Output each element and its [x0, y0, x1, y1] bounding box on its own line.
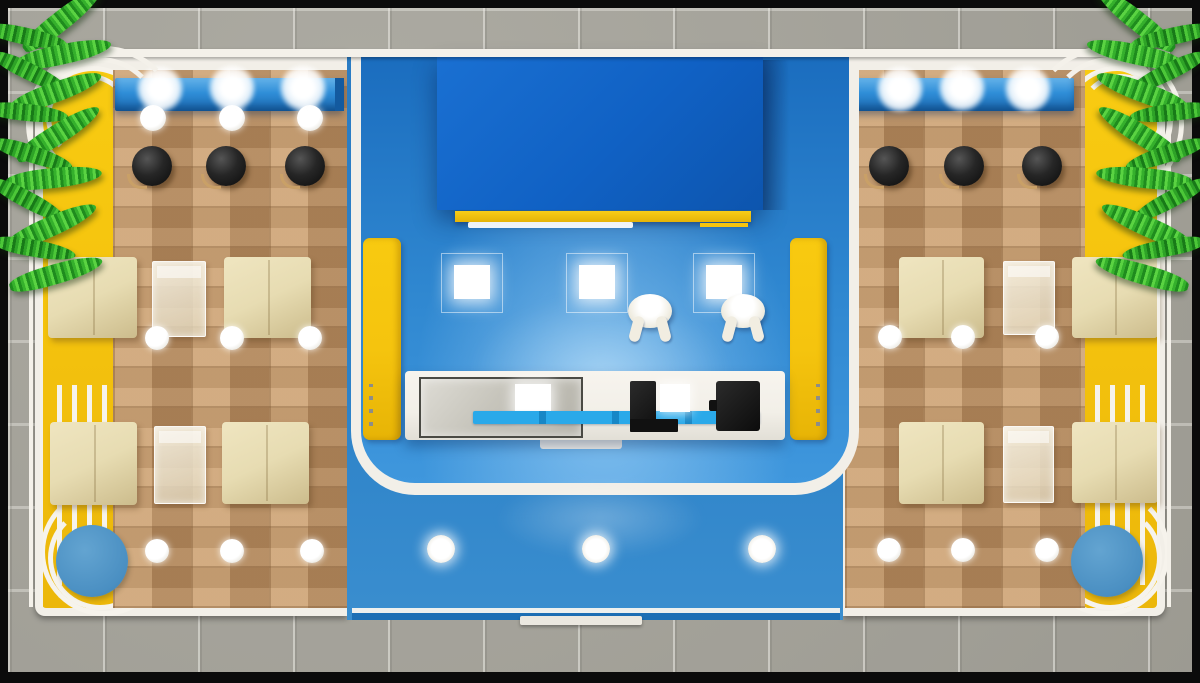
shelf-highlight — [468, 222, 633, 228]
sofa-seat — [222, 422, 309, 504]
floor-light — [145, 539, 169, 563]
signage-spotlight — [279, 64, 327, 112]
round-blue-table — [56, 525, 128, 597]
sofa-seat — [899, 422, 984, 504]
bar-stool — [206, 146, 246, 186]
palm-plant-right — [1078, 14, 1198, 304]
counter-step — [540, 440, 622, 449]
floor-light — [220, 539, 244, 563]
signage-spotlight — [208, 64, 256, 112]
bar-stool — [944, 146, 984, 186]
floor-light — [300, 539, 324, 563]
floor-light — [877, 538, 901, 562]
shelf-highlight-right — [700, 223, 748, 227]
floor-light — [145, 326, 169, 350]
visitor-figure — [721, 294, 765, 328]
floor-light — [951, 538, 975, 562]
floor-light — [220, 326, 244, 350]
stage-canopy — [437, 57, 763, 210]
counter-light-panel — [660, 384, 690, 412]
yellow-pillar — [363, 238, 401, 440]
sofa-seat — [224, 257, 311, 338]
bar-stool — [869, 146, 909, 186]
stage-canopy-shadow — [763, 60, 789, 210]
palm-plant-left — [0, 14, 120, 304]
display-case — [419, 377, 583, 438]
round-blue-table — [1071, 525, 1143, 597]
signage-spotlight — [876, 65, 924, 113]
floor-light — [1035, 538, 1059, 562]
glass-table — [1003, 261, 1055, 335]
entry-step — [520, 616, 642, 625]
coffee-machine-2 — [716, 381, 760, 431]
floor-light — [878, 325, 902, 349]
booth-top-view-render — [0, 0, 1200, 683]
sofa-seat — [50, 422, 137, 505]
sofa-seat — [899, 257, 984, 338]
frame-top-rail — [30, 49, 1170, 57]
sofa-seat — [1072, 422, 1158, 503]
yellow-shelf — [455, 211, 751, 222]
apron-spotlight — [582, 535, 610, 563]
apron-spotlight — [427, 535, 455, 563]
floor-light — [1035, 325, 1059, 349]
glass-table — [1003, 426, 1054, 503]
wall-light-panel — [566, 253, 628, 313]
floor-light — [298, 326, 322, 350]
signage-spotlight — [938, 64, 986, 112]
coffee-machine-1-base — [630, 419, 678, 432]
apron-spotlight — [748, 535, 776, 563]
floor-light — [951, 325, 975, 349]
glass-table — [154, 426, 206, 504]
bar-stool — [285, 146, 325, 186]
visitor-figure — [628, 294, 672, 328]
yellow-pillar — [790, 238, 827, 440]
wall-light-panel — [441, 253, 503, 313]
